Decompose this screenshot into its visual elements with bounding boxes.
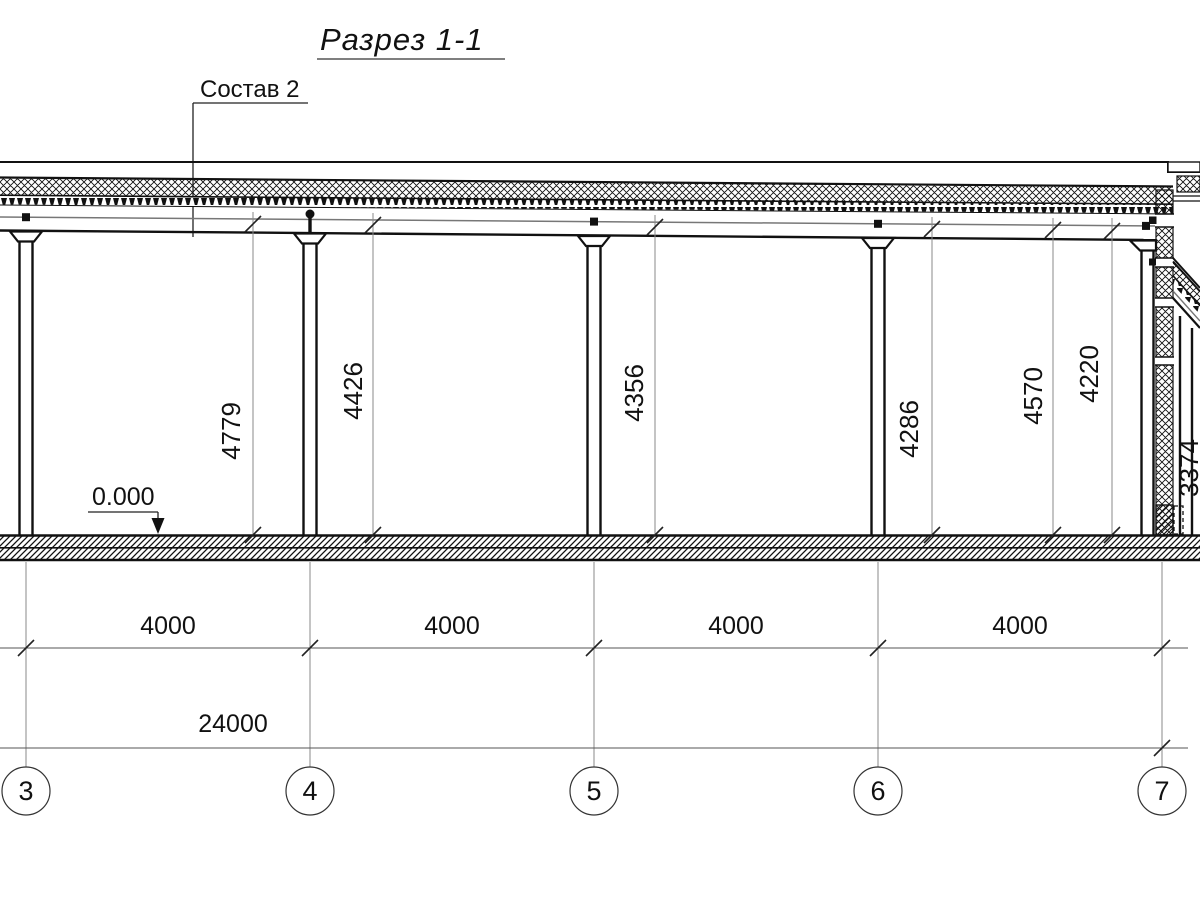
bay-dimension-label-2: 4000 — [708, 612, 764, 640]
bay-dimension-label-0: 4000 — [140, 612, 196, 640]
axis-bubble-label-3: 6 — [870, 776, 885, 806]
wall-plinth — [1156, 505, 1173, 535]
joint-marker — [874, 220, 882, 228]
vertical-dim-label-6: 3374 — [1174, 439, 1200, 497]
total-dimension-label: 24000 — [198, 710, 268, 738]
floor-hatch-upper — [0, 536, 1200, 547]
drawing-header: Разрез 1-1 — [317, 22, 505, 59]
page-title: Разрез 1-1 — [320, 22, 484, 57]
bay-dimension-label-1: 4000 — [424, 612, 480, 640]
beam-end-plate — [1149, 259, 1156, 266]
joint-marker — [1142, 222, 1150, 230]
axis-bubble-label-4: 7 — [1154, 776, 1169, 806]
callout-label: Состав 2 — [200, 76, 300, 103]
floor-hatch-lower — [0, 549, 1200, 560]
vertical-dim-label-5: 4220 — [1074, 345, 1104, 403]
level-mark-label: 0.000 — [92, 483, 155, 511]
axis-bubble-label-1: 4 — [302, 776, 317, 806]
parapet-cap — [1168, 162, 1200, 172]
axis-bubble-label-0: 3 — [18, 776, 33, 806]
joint-marker — [22, 213, 30, 221]
section-drawing: Разрез 1-1 Состав 2 — [0, 0, 1200, 900]
vertical-dim-label-1: 4426 — [338, 362, 368, 420]
vertical-dim-label-2: 4356 — [619, 364, 649, 422]
vertical-dim-label-3: 4286 — [894, 400, 924, 458]
hidden-element-dashed — [1174, 506, 1183, 534]
vertical-dim-label-4: 4570 — [1018, 367, 1048, 425]
axis-bubble-label-2: 5 — [586, 776, 601, 806]
roof-continuation — [1177, 176, 1200, 192]
bay-dimension-label-3: 4000 — [992, 612, 1048, 640]
vertical-dim-label-0: 4779 — [216, 402, 246, 460]
floor-slab — [0, 536, 1200, 561]
beam-end-plate — [1149, 217, 1157, 225]
joint-marker — [590, 218, 598, 226]
